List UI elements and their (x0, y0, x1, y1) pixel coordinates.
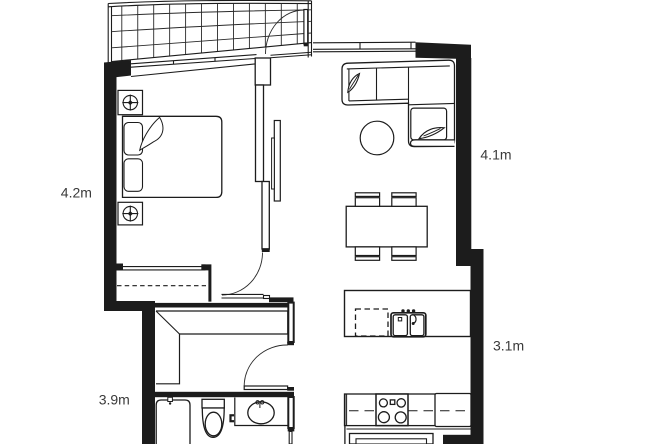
svg-text:3.9m: 3.9m (99, 392, 130, 408)
svg-text:3.1m: 3.1m (493, 338, 524, 354)
svg-text:4.1m: 4.1m (480, 147, 511, 163)
svg-text:4.2m: 4.2m (61, 185, 92, 201)
